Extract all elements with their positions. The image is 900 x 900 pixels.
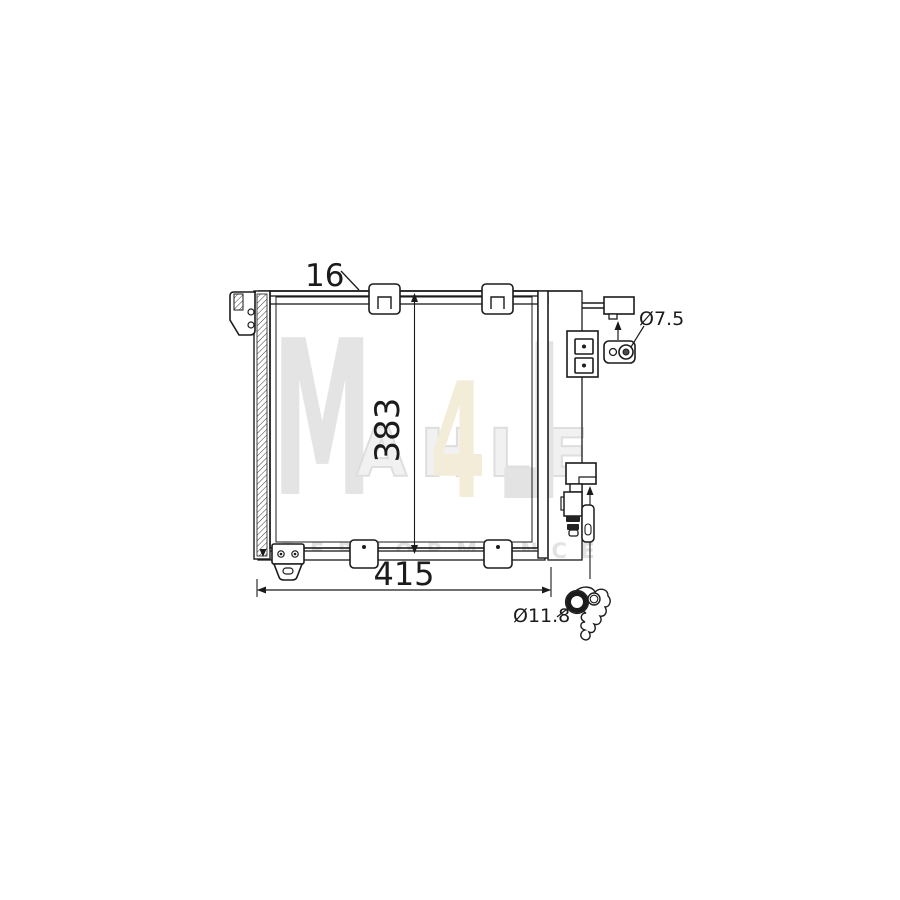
- connector-block: [604, 297, 634, 314]
- top-left-mounting-bracket: [230, 292, 256, 335]
- drier-clamp-bracket: [567, 331, 598, 377]
- dia-7-5-label: Ø7.5: [639, 308, 684, 330]
- dia-11-8-label: Ø11.8: [513, 605, 570, 627]
- inlet-pipe-connector: [582, 297, 634, 319]
- dimension-415-label: 415: [373, 555, 434, 593]
- dimension-383: 383: [368, 293, 418, 554]
- top-clip-left: [369, 284, 400, 314]
- mounting-lug-7-5: [604, 341, 635, 363]
- dimension-383-label: 383: [368, 398, 408, 463]
- left-side-rail: [254, 291, 270, 559]
- bottom-left-mounting-bracket: [272, 544, 304, 580]
- dimension-16-label: 16: [305, 258, 344, 294]
- product-image-canvas: M AHLE 4 L PERFORMANCE: [0, 0, 900, 900]
- valve-rib: [566, 516, 580, 522]
- bottom-clip-right: [484, 540, 512, 568]
- condenser-technical-drawing: 415 383 16 Ø7.5 Ø11.8: [0, 0, 900, 900]
- pipe-fitting-11-8: [566, 587, 611, 640]
- callout-dia-11-8: Ø11.8: [513, 605, 572, 627]
- callout-dia-7-5: Ø7.5: [631, 308, 684, 347]
- valve-rib: [567, 524, 579, 530]
- top-clip-right: [482, 284, 513, 314]
- right-side-rail: [538, 291, 548, 558]
- connector-pointer-arrow: [615, 321, 622, 340]
- dimension-16: 16: [305, 258, 359, 294]
- pressure-valve-assembly: [561, 463, 596, 542]
